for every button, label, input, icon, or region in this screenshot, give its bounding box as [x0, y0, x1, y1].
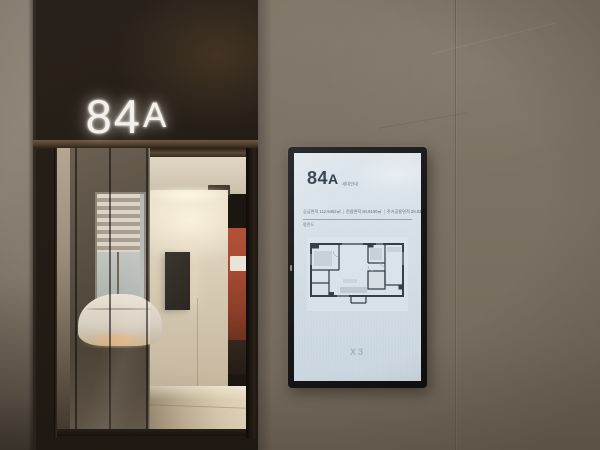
- door-threshold: [57, 429, 248, 436]
- kiosk-title-letter: A: [328, 171, 338, 187]
- kiosk-area-specs: 공급면적 112.9402㎡|전용면적 84.9100㎡|주거공용면적 28.0…: [303, 209, 421, 215]
- kiosk-title-number: 84: [307, 168, 328, 189]
- unit-sign-84a: 84 A: [62, 84, 192, 148]
- photo-scene: 84 A: [0, 0, 600, 450]
- kiosk-title: 84 A 세대안내: [307, 168, 372, 189]
- brand-logo: X3: [294, 347, 421, 357]
- orange-cabinet: [228, 228, 248, 340]
- unit-sign-number: 84: [86, 89, 142, 144]
- tile-seam: [455, 0, 456, 450]
- spec-item: 전용면적 84.9100㎡: [346, 210, 382, 215]
- floor-plan: [307, 237, 408, 311]
- door-surround-edge: [33, 0, 36, 450]
- spec-divider: |: [343, 210, 344, 215]
- cabinet-shadow: [228, 340, 248, 374]
- wall-artwork: [165, 252, 190, 310]
- divider-rule: [303, 219, 412, 220]
- unit-sign-letter: A: [143, 96, 168, 136]
- kiosk-title-suffix: 세대안내: [342, 181, 358, 187]
- stone-wall-left: [0, 0, 33, 450]
- digital-signage-kiosk: 84 A 세대안내 공급면적 112.9402㎡|전용면적 84.9100㎡|주…: [288, 147, 427, 388]
- cove-light-glow: [150, 188, 228, 204]
- wall-panel-seam: [197, 298, 198, 393]
- kiosk-screen[interactable]: 84 A 세대안내 공급면적 112.9402㎡|전용면적 84.9100㎡|주…: [294, 153, 421, 381]
- door-jamb-right: [246, 148, 258, 438]
- spec-item: 주거공용면적 28.0302㎡: [387, 210, 421, 215]
- stone-vein: [430, 22, 556, 54]
- floor-gloss: [150, 386, 248, 400]
- cabinet-appliance: [230, 256, 247, 271]
- spec-item: 공급면적 112.9402㎡: [303, 210, 341, 215]
- glass-reflection-shine: [70, 148, 150, 436]
- door-jamb-left: [54, 148, 57, 438]
- spec-divider: |: [384, 210, 385, 215]
- doorway-opening[interactable]: [57, 148, 248, 436]
- kiosk-sublabel: 평면도: [303, 222, 314, 228]
- kiosk-power-led: [290, 265, 292, 271]
- door-jamb-face: [57, 148, 71, 436]
